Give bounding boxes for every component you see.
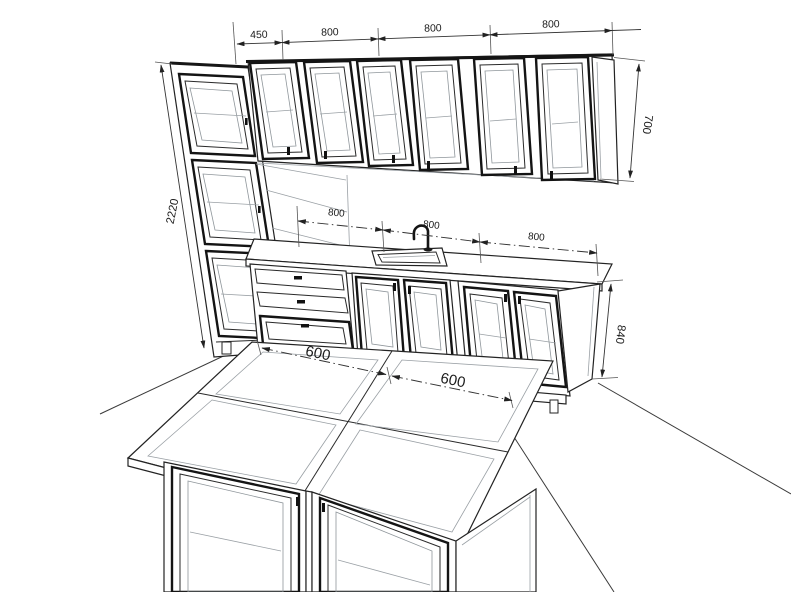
wall-cabinet-door-6 bbox=[536, 57, 595, 180]
sink-base-door-left bbox=[356, 277, 404, 359]
dim-label-counter-800-3: 800 bbox=[527, 231, 545, 244]
island-center-stile bbox=[306, 491, 312, 592]
wall-cabinets bbox=[246, 54, 618, 184]
dim-label-700: 700 bbox=[640, 114, 655, 135]
tall-cabinet-door-1 bbox=[179, 74, 255, 156]
dim-label-counter-800-1: 800 bbox=[327, 207, 345, 220]
sink bbox=[372, 248, 447, 266]
kitchen-dimension-drawing: 450 800 800 800 2220 700 800 bbox=[0, 0, 791, 592]
wall-cabinet-door-4 bbox=[410, 59, 468, 170]
sink-base-door-right bbox=[404, 280, 453, 362]
island bbox=[128, 342, 553, 592]
tall-cabinet-door-2 bbox=[192, 160, 269, 247]
dim-label-840: 840 bbox=[613, 324, 627, 345]
dim-label-top-800-2: 800 bbox=[424, 22, 442, 35]
dim-label-2220: 2220 bbox=[165, 198, 182, 225]
wall-cabinet-door-5 bbox=[474, 58, 532, 175]
dim-label-top-450: 450 bbox=[250, 29, 268, 42]
dim-label-top-800-3: 800 bbox=[542, 18, 560, 31]
dim-label-top-800-1: 800 bbox=[321, 26, 339, 39]
kitchen-drawing-canvas: 450 800 800 800 2220 700 800 bbox=[0, 0, 791, 592]
dim-label-counter-800-2: 800 bbox=[422, 219, 440, 232]
